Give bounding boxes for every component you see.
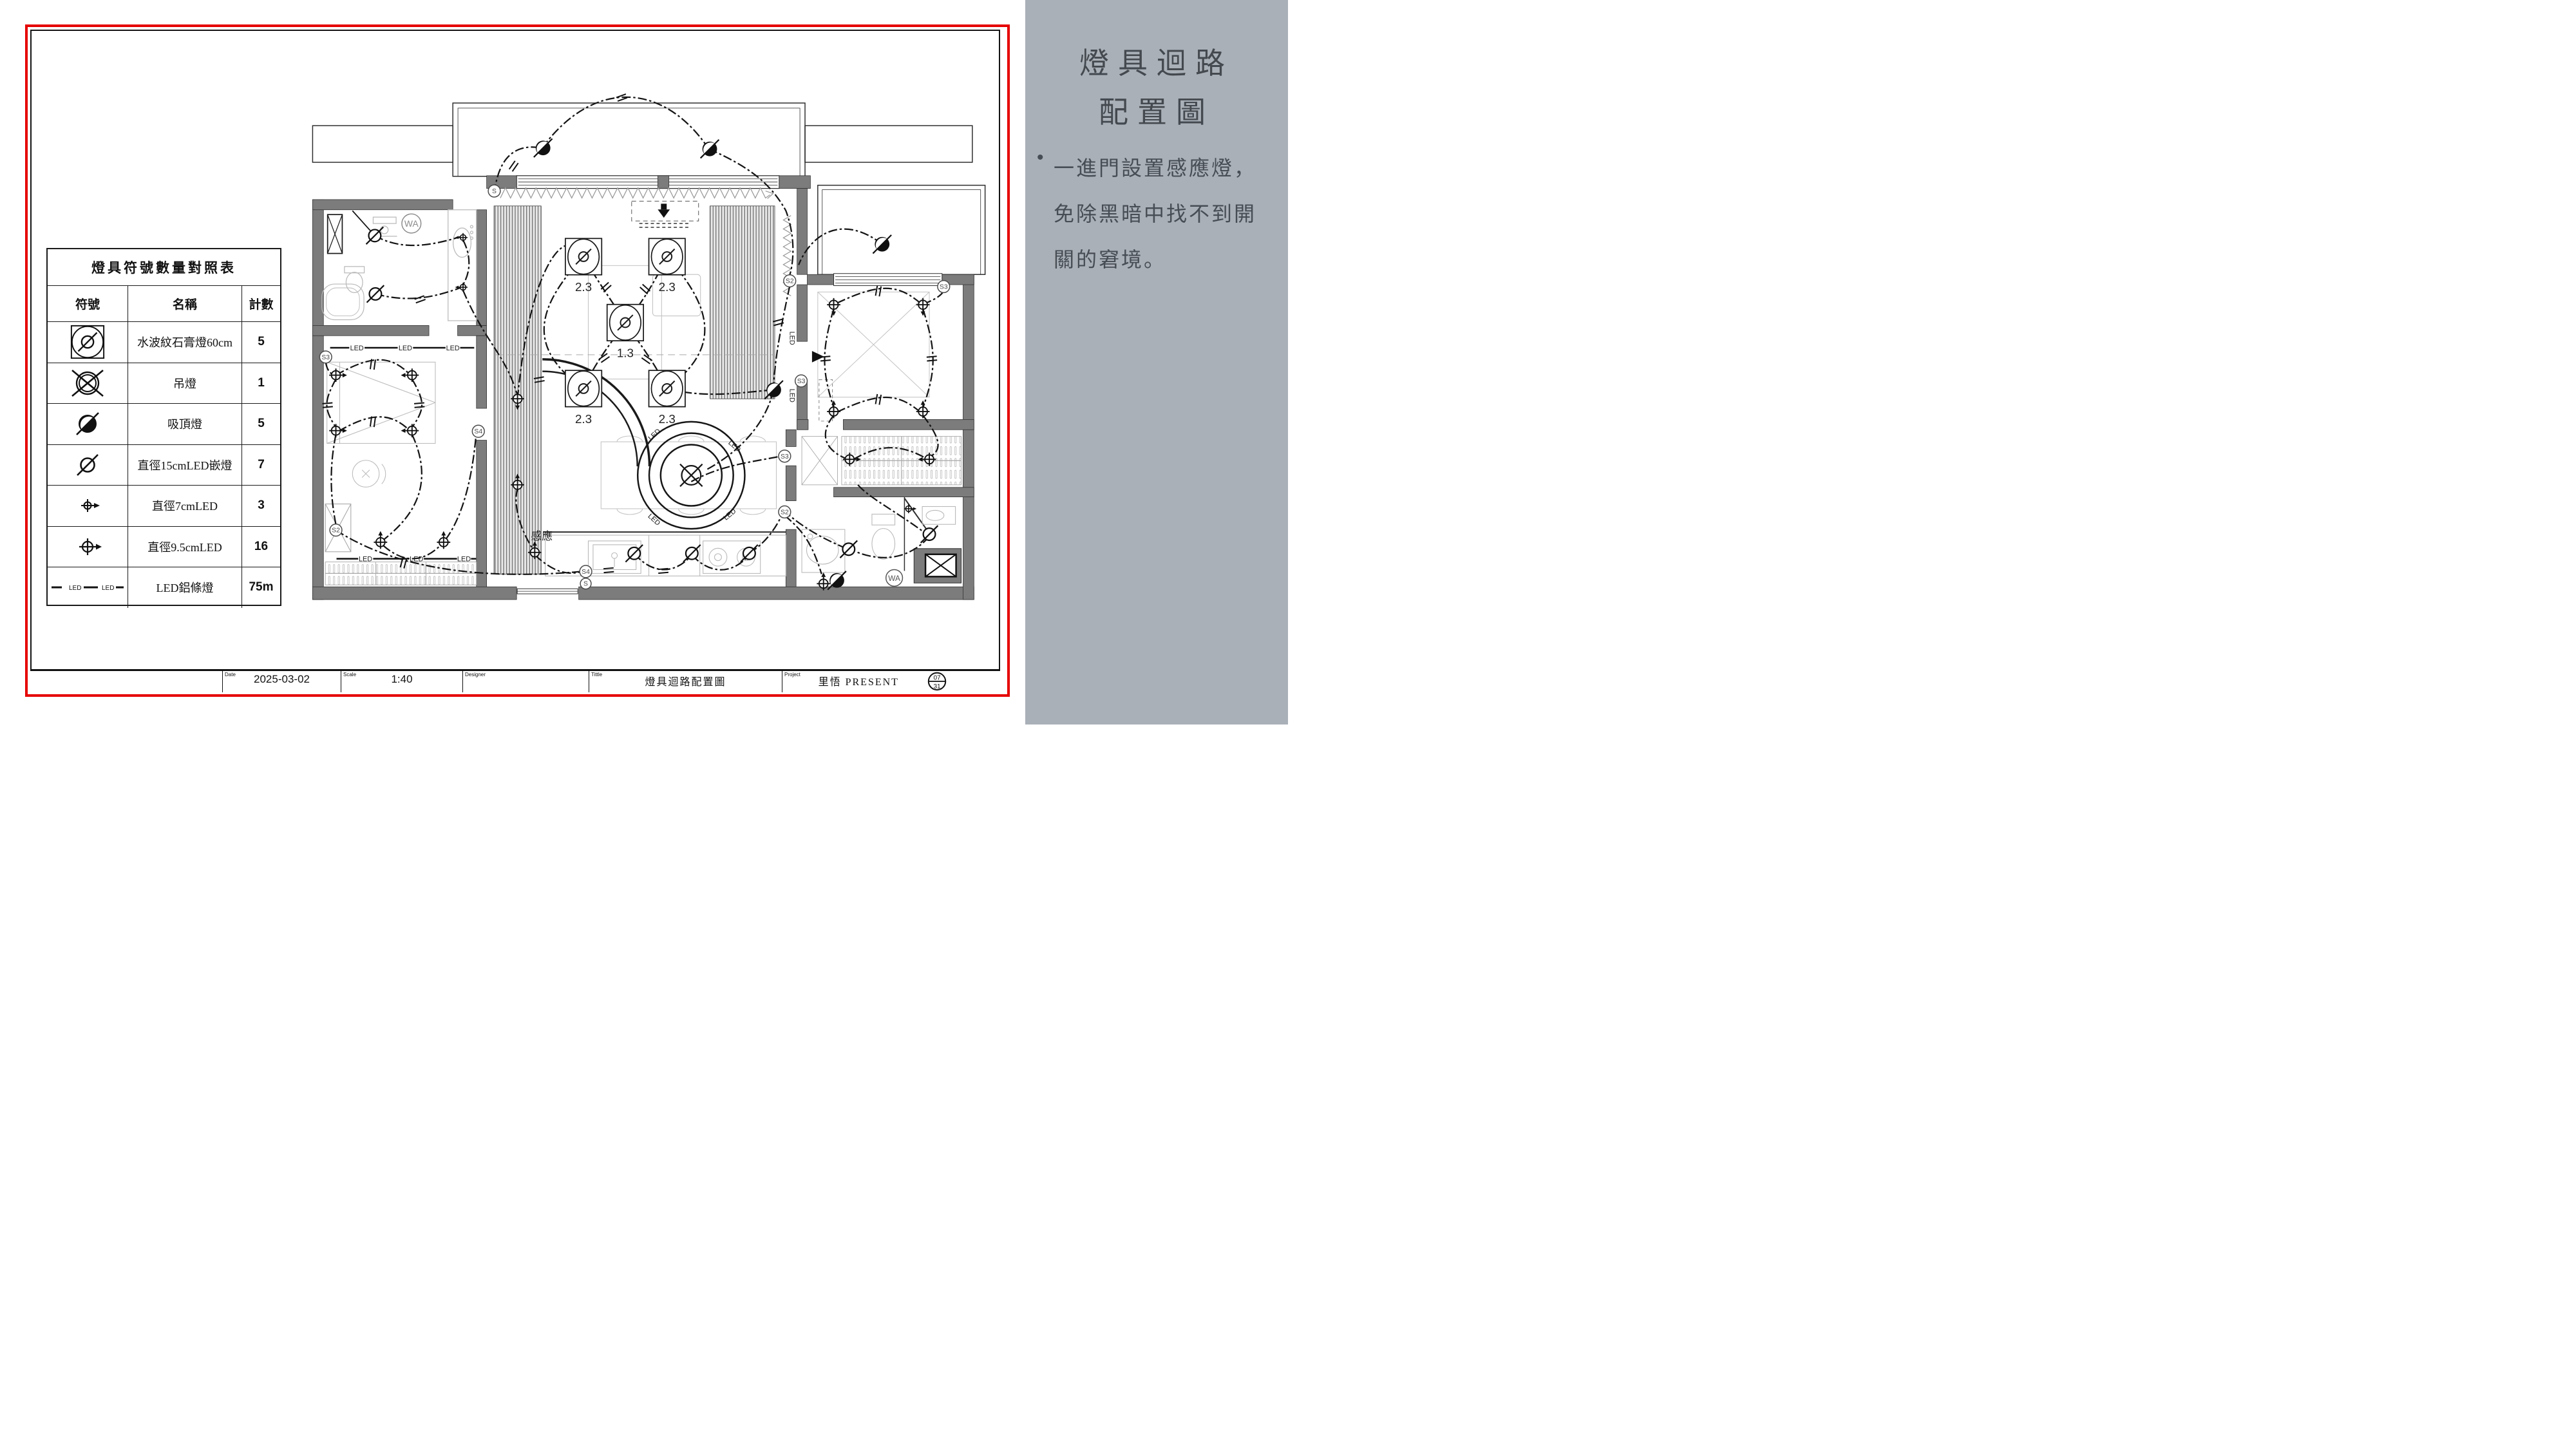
svg-text:S: S bbox=[583, 581, 588, 588]
legend-header-row: 符號 名稱 計數 bbox=[48, 286, 280, 322]
sidebar-title-line2: 配置圖 bbox=[1025, 88, 1288, 137]
sensor-label: 感應 bbox=[531, 529, 553, 542]
titleblock-scale-cell: Scale 1:40 bbox=[341, 671, 463, 692]
svg-text:WA: WA bbox=[888, 574, 900, 583]
svg-text:2.3: 2.3 bbox=[575, 412, 592, 426]
sidebar-title: 燈具迴路 配置圖 bbox=[1025, 39, 1288, 137]
svg-text:LED: LED bbox=[788, 389, 795, 402]
legend-name: 水波紋石膏燈60cm bbox=[128, 322, 242, 363]
svg-text:LED: LED bbox=[359, 556, 372, 563]
title-block: Date 2025-03-02 Scale 1:40 Designer Titt… bbox=[30, 669, 1000, 692]
legend-row: 水波紋石膏燈60cm 5 bbox=[48, 322, 280, 363]
svg-text:S2: S2 bbox=[786, 278, 794, 285]
legend-name: 直徑9.5cmLED bbox=[128, 527, 242, 567]
svg-text:LED: LED bbox=[399, 345, 412, 352]
sheet-number-badge: 07 31 bbox=[927, 672, 947, 691]
svg-text:S3: S3 bbox=[940, 283, 948, 290]
titleblock-project-cell: Project 里悟 PRESENT bbox=[782, 671, 1000, 692]
svg-text:WA: WA bbox=[404, 218, 419, 229]
svg-text:LED: LED bbox=[446, 345, 460, 352]
svg-text:S3: S3 bbox=[321, 354, 330, 361]
legend-count: 1 bbox=[242, 363, 280, 404]
svg-text:LED: LED bbox=[69, 585, 81, 592]
legend-name: 吸頂燈 bbox=[128, 404, 242, 444]
legend-count: 3 bbox=[242, 486, 280, 526]
svg-text:LED: LED bbox=[788, 332, 795, 345]
gypsum-lamp-icon bbox=[48, 322, 128, 363]
svg-text:S3: S3 bbox=[781, 453, 789, 460]
svg-text:S2: S2 bbox=[332, 527, 340, 535]
sidebar-paragraph-line2: 免除黑暗中找不到開 bbox=[1054, 191, 1266, 237]
sidebar-paragraph-line1: 一進門設置感應燈， bbox=[1054, 146, 1266, 191]
legend-title: 燈具符號數量對照表 bbox=[48, 249, 280, 286]
svg-text:1.3: 1.3 bbox=[617, 346, 634, 359]
svg-text:2.3: 2.3 bbox=[575, 280, 592, 294]
svg-text:S2: S2 bbox=[781, 509, 789, 516]
legend-row: 直徑9.5cmLED 16 bbox=[48, 527, 280, 568]
legend-col-symbol: 符號 bbox=[48, 286, 128, 321]
legend-row: 吊燈 1 bbox=[48, 363, 280, 404]
legend-name: LED鋁條燈 bbox=[128, 567, 242, 608]
legend-name: 直徑7cmLED bbox=[128, 486, 242, 526]
sidebar: 燈具迴路 配置圖 • 一進門設置感應燈， 免除黑暗中找不到開 關的窘境。 bbox=[1025, 0, 1288, 724]
wa-circle-bottomright: WA bbox=[886, 569, 903, 586]
living-window-band bbox=[516, 176, 779, 189]
titleblock-title-cell: Tittle 燈具迴路配置圖 bbox=[589, 671, 782, 692]
legend-table: 燈具符號數量對照表 符號 名稱 計數 水波紋石膏燈60cm 5 bbox=[46, 248, 281, 606]
led95-icon bbox=[48, 527, 128, 567]
legend-count: 16 bbox=[242, 527, 280, 567]
sheet-number-top: 07 bbox=[933, 675, 941, 682]
svg-text:S: S bbox=[492, 188, 497, 195]
legend-name: 吊燈 bbox=[128, 363, 242, 404]
date-value: 2025-03-02 bbox=[223, 673, 341, 686]
entry-threshold bbox=[517, 589, 578, 594]
legend-row: LED LED LED鋁條燈 75m bbox=[48, 567, 280, 608]
sidebar-paragraph-line3: 關的窘境。 bbox=[1054, 237, 1266, 283]
titleblock-designer-cell: Designer bbox=[463, 671, 589, 692]
led-strip-icon: LED LED bbox=[48, 567, 128, 608]
legend-count: 5 bbox=[242, 404, 280, 444]
svg-text:S4: S4 bbox=[582, 569, 590, 576]
sidebar-paragraph: 一進門設置感應燈， 免除黑暗中找不到開 關的窘境。 bbox=[1054, 146, 1266, 283]
legend-count: 7 bbox=[242, 445, 280, 486]
svg-text:2.3: 2.3 bbox=[659, 280, 676, 294]
svg-text:2.3: 2.3 bbox=[659, 412, 676, 426]
drawing-sheet: 燈具符號數量對照表 符號 名稱 計數 水波紋石膏燈60cm 5 bbox=[0, 0, 1288, 724]
titleblock-empty-cell bbox=[30, 671, 223, 692]
svg-text:S3: S3 bbox=[797, 378, 806, 385]
sidebar-title-line1: 燈具迴路 bbox=[1025, 39, 1288, 88]
title-value: 燈具迴路配置圖 bbox=[589, 673, 782, 688]
legend-name: 直徑15cmLED嵌燈 bbox=[128, 445, 242, 486]
legend-row: 直徑7cmLED 3 bbox=[48, 486, 280, 527]
legend-row: 吸頂燈 5 bbox=[48, 404, 280, 445]
scale-value: 1:40 bbox=[341, 673, 462, 686]
pendant-lamp-icon bbox=[48, 363, 128, 404]
ceiling-lamp-icon bbox=[48, 404, 128, 444]
sheet-number-bottom: 31 bbox=[933, 683, 941, 690]
svg-text:LED: LED bbox=[457, 556, 471, 563]
downlight-icon bbox=[48, 445, 128, 486]
legend-col-name: 名稱 bbox=[128, 286, 242, 321]
svg-text:LED: LED bbox=[102, 585, 114, 592]
legend-count: 5 bbox=[242, 322, 280, 363]
floor-plan: WA bbox=[308, 32, 993, 606]
project-value: 里悟 PRESENT bbox=[782, 673, 935, 688]
titleblock-date-cell: Date 2025-03-02 bbox=[223, 671, 341, 692]
svg-text:S4: S4 bbox=[474, 428, 482, 435]
master-window-band bbox=[834, 274, 942, 286]
led7-icon bbox=[48, 486, 128, 526]
legend-col-count: 計數 bbox=[242, 286, 280, 321]
designer-label: Designer bbox=[465, 672, 486, 677]
sidebar-bullet: • bbox=[1037, 147, 1044, 169]
svg-text:LED: LED bbox=[350, 345, 364, 352]
legend-count: 75m bbox=[242, 567, 280, 608]
legend-row: 直徑15cmLED嵌燈 7 bbox=[48, 445, 280, 486]
